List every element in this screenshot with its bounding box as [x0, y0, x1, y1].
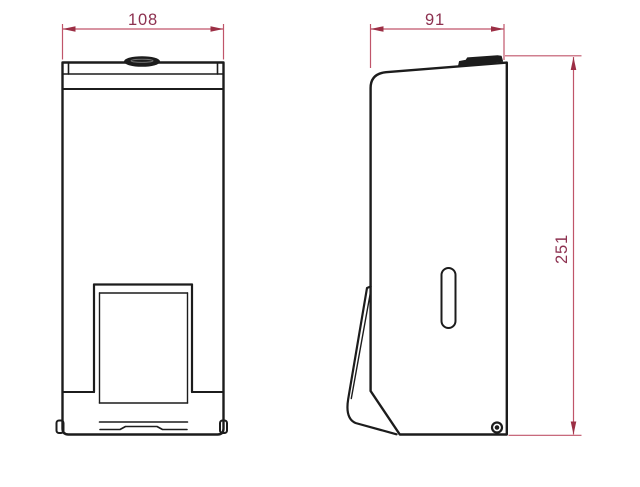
- front-view: [57, 57, 228, 435]
- push-lever-outer: [347, 287, 396, 435]
- push-lever-inner: [351, 292, 370, 399]
- front-width-arrow-right: [211, 26, 224, 32]
- side-depth-value: 91: [425, 11, 445, 29]
- dimension-front-width: 108: [63, 11, 224, 60]
- side-body-outline: [371, 63, 507, 435]
- side-depth-arrow-left: [371, 26, 384, 32]
- side-height-arrow-bottom: [571, 422, 577, 435]
- side-view: [347, 56, 506, 435]
- level-window-slot: [442, 268, 456, 328]
- side-height-value: 251: [553, 234, 571, 264]
- front-width-arrow-left: [63, 26, 76, 32]
- technical-drawing-canvas: 108 91 251: [0, 0, 640, 487]
- outlet-lip: [100, 427, 187, 430]
- dimension-side-height: 251: [505, 56, 582, 436]
- side-height-arrow-top: [571, 57, 577, 70]
- dispenser-technical-drawing: 108 91 251: [0, 0, 640, 487]
- front-width-value: 108: [128, 11, 158, 29]
- bottom-screw-center: [495, 426, 499, 430]
- side-depth-arrow-right: [491, 26, 504, 32]
- front-body-outline: [63, 63, 224, 435]
- lid-lock-button-front: [125, 57, 160, 67]
